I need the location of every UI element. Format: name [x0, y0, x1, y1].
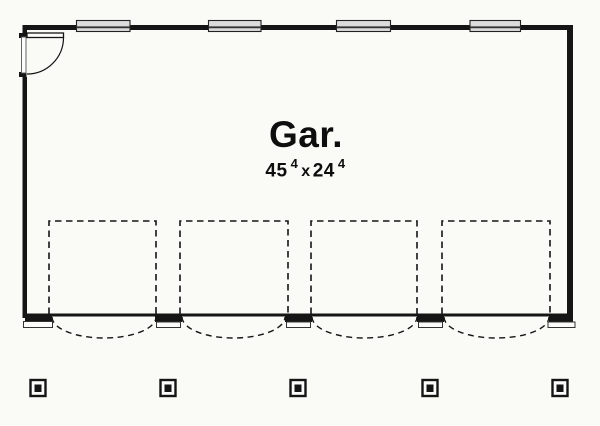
left-wall-upper-stub [23, 25, 28, 34]
window-symbol-4 [470, 21, 521, 32]
post-symbol-2 [161, 380, 176, 396]
dim-width-feet: 45 [265, 160, 287, 181]
post-symbol-5 [553, 380, 568, 396]
room-label: Gar. [225, 116, 387, 155]
garage-door-swing-arc-1 [52, 317, 156, 338]
floor-plan: Gar. 454x244 [0, 0, 600, 426]
door-leaf [27, 33, 64, 38]
garage-stall-outline-4 [442, 221, 550, 314]
dim-depth-feet: 24 [313, 160, 335, 181]
garage-stall-outline-2 [180, 221, 288, 314]
entry-door-symbol [19, 33, 64, 77]
right-wall [567, 25, 573, 318]
dim-depth-inches: 4 [338, 156, 346, 171]
pier-sills [24, 322, 576, 328]
wall-pier-5 [549, 316, 573, 323]
pier-sill-4 [419, 322, 443, 328]
wall-pier-3 [285, 316, 312, 323]
window-symbol-3 [337, 21, 391, 32]
wall-pier-1 [25, 315, 52, 322]
door-swing-arc [27, 38, 64, 75]
garage-door-swing-arc-4 [444, 317, 549, 338]
post-symbol-4 [423, 380, 438, 396]
post-symbols [31, 380, 568, 396]
door-opening [22, 37, 27, 73]
dim-separator: x [301, 163, 310, 180]
wall-pier-4 [417, 316, 444, 323]
garage-stall-outline-1 [49, 221, 156, 314]
wall-pier-2 [155, 316, 182, 323]
window-symbol-2 [209, 21, 262, 32]
dim-width-inches: 4 [291, 156, 299, 171]
garage-door-swing-arc-3 [312, 317, 417, 338]
pier-sill-1 [24, 322, 53, 328]
garage-stall-outline-3 [311, 221, 417, 314]
garage-stall-outlines [49, 221, 550, 314]
garage-door-swing-arc-2 [182, 317, 285, 338]
floor-plan-drawing [0, 0, 600, 426]
left-wall [23, 77, 28, 318]
room-dimensions: 454x244 [225, 157, 387, 182]
pier-sill-5 [548, 322, 575, 328]
post-symbol-1 [31, 380, 46, 396]
pier-sill-3 [287, 322, 311, 328]
pier-sill-2 [157, 322, 181, 328]
window-symbol-1 [77, 21, 131, 32]
post-symbol-3 [291, 380, 306, 396]
